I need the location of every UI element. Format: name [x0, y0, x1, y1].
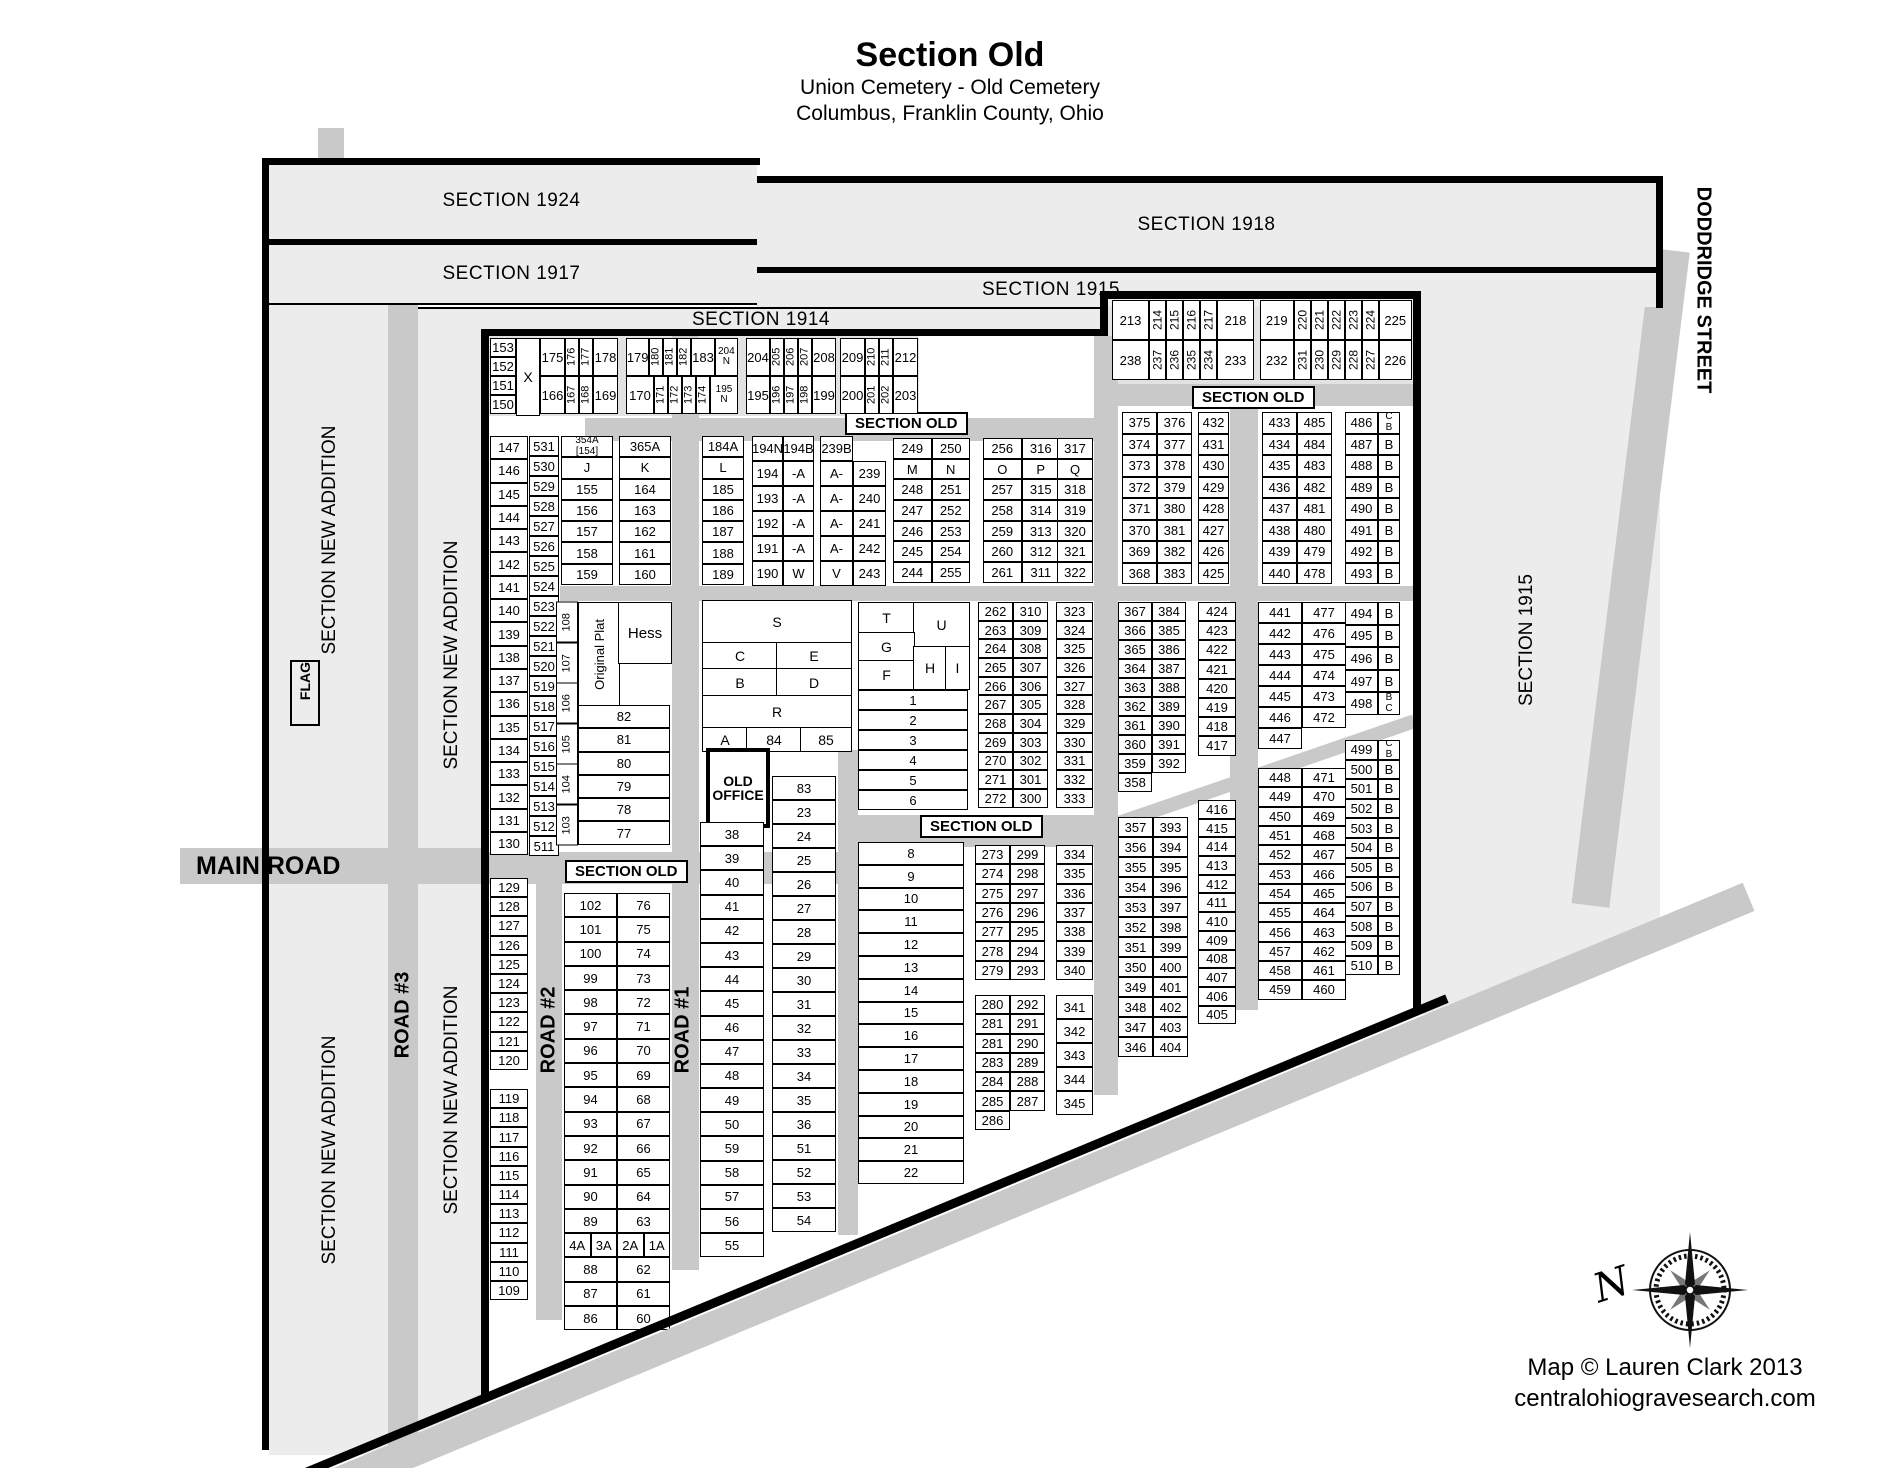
section-1917-label: SECTION 1917: [443, 263, 581, 285]
plot-grid-38-59: 383940414243444546474849505958575655: [700, 822, 764, 1257]
plot-cell-164: 164: [619, 479, 671, 500]
plot-cell-420: 420: [1198, 679, 1236, 698]
plot-cell-296: 296: [1010, 903, 1045, 922]
plot-cell-525: 525: [529, 556, 559, 576]
plot-cell-395: 395: [1153, 857, 1188, 877]
plot-cell-478: 478: [1297, 563, 1332, 585]
plot-cell-330: 330: [1056, 733, 1093, 752]
plot-cell-207: 207: [798, 338, 812, 376]
plot-grid-184-189: 184AL185186187188189: [702, 436, 744, 585]
plot-cell-460: 460: [1302, 980, 1346, 999]
plot-cell-325: 325: [1056, 639, 1093, 658]
plot-cell-219: 219: [1260, 300, 1294, 340]
plot-cell-158: 158: [561, 542, 613, 563]
plot-cell-59: 59: [700, 1136, 764, 1160]
plot-cell-270: 270: [978, 752, 1013, 771]
plot-grid-150-153: 153152151150: [490, 338, 516, 414]
plot-cell-h: H: [913, 646, 947, 690]
plot-cell-387: 387: [1152, 659, 1186, 678]
plot-cell-132: 132: [490, 785, 528, 808]
plot-cell-184a: 184A: [702, 436, 744, 457]
plot-cell-134: 134: [490, 739, 528, 762]
plot-cell-88: 88: [564, 1257, 617, 1281]
plot-cell-c-b: CB: [1378, 412, 1400, 434]
plot-cell-58: 58: [700, 1161, 764, 1185]
plot-cell-509: 509: [1345, 936, 1378, 956]
plot-cell-123: 123: [490, 993, 528, 1012]
plot-cell-385: 385: [1152, 621, 1186, 640]
plot-cell-231: 231: [1294, 340, 1311, 380]
plot-cell-162: 162: [619, 521, 671, 542]
plot-cell-308: 308: [1013, 639, 1048, 658]
plot-cell-12: 12: [858, 933, 964, 956]
plot-cell-514: 514: [529, 776, 559, 796]
plot-cell-367: 367: [1118, 602, 1152, 621]
plot-cell-512: 512: [529, 816, 559, 836]
plot-cell-275: 275: [975, 884, 1010, 903]
section-1918-right-border: [1656, 176, 1663, 308]
plot-cell-j: J: [561, 457, 613, 478]
plot-cell-376: 376: [1157, 412, 1192, 434]
plot-cell-167: 167: [565, 376, 579, 414]
plot-cell-471: 471: [1302, 768, 1346, 787]
plot-cell-13: 13: [858, 956, 964, 979]
section-old-label-upper: SECTION OLD: [845, 412, 968, 435]
dodridge-street-label: DODDRIDGE STREET: [1692, 187, 1715, 394]
plot-cell-b: B: [1378, 520, 1400, 542]
plot-cell-213: 213: [1112, 300, 1149, 340]
plot-cell-426: 426: [1198, 541, 1229, 563]
plot-cell-20: 20: [858, 1116, 964, 1139]
plot-cell-100: 100: [564, 942, 617, 966]
plot-cell-493: 493: [1345, 563, 1378, 585]
plot-cell-311: 311: [1022, 562, 1061, 583]
plot-cell-526: 526: [529, 536, 559, 556]
road1-label: ROAD #1: [672, 987, 695, 1074]
plot-cell-407: 407: [1198, 968, 1236, 987]
plot-cell-64: 64: [617, 1185, 670, 1209]
plot-cell-239b: 239B: [820, 436, 853, 461]
plot-cell-137: 137: [490, 669, 528, 692]
plot-cell-315: 315: [1022, 479, 1061, 500]
plot-cell-193: 193: [752, 486, 783, 511]
plot-cell-306: 306: [1013, 677, 1048, 696]
plot-cell-w: W: [783, 561, 814, 586]
plot-grid-405-416: 416415414413412411410409408407406405: [1198, 800, 1236, 1024]
plot-cell-t: T: [858, 602, 915, 634]
plot-cell-302: 302: [1013, 752, 1048, 771]
plot-grid-60-102: 1027610175100749973987297719670956994689…: [564, 893, 670, 1330]
plot-cell-3: 3: [858, 730, 968, 750]
plot-grid-368-383: 3753763743773733783723793713803703813693…: [1122, 412, 1192, 584]
plot-cell-113: 113: [490, 1204, 528, 1223]
plot-cell-91: 91: [564, 1160, 617, 1184]
plot-grid-448-471: 4484714494704504694514684524674534664544…: [1258, 768, 1346, 1000]
plot-cell-9: 9: [858, 865, 964, 888]
plot-cell-319: 319: [1057, 500, 1093, 521]
plot-cell-396: 396: [1153, 877, 1188, 897]
plot-cell-428: 428: [1198, 498, 1229, 520]
plot-cell-199: 199: [812, 376, 836, 414]
plot-cell-15: 15: [858, 1002, 964, 1025]
plot-cell-235: 235: [1183, 340, 1200, 380]
plot-cell-18: 18: [858, 1070, 964, 1093]
plot-cell-494: 494: [1345, 602, 1378, 625]
plot-cell--a: -A: [783, 486, 814, 511]
plot-cell-503: 503: [1345, 818, 1378, 838]
plot-cell-141: 141: [490, 576, 528, 599]
plot-cell-19: 19: [858, 1093, 964, 1116]
plot-cell-284: 284: [975, 1072, 1010, 1091]
plot-cell-268: 268: [978, 714, 1013, 733]
plot-cell-a-: A-: [820, 486, 853, 511]
plot-grid-170-204N: 179180181182183204N170171172173174195N: [626, 338, 738, 414]
plot-cell-122: 122: [490, 1012, 528, 1031]
plot-grid-262-310: 2623102633092643082653072663062673052683…: [978, 602, 1048, 808]
plot-cell-179: 179: [626, 338, 649, 376]
plot-cell-475: 475: [1302, 644, 1346, 665]
plot-cell-b: B: [1378, 434, 1400, 456]
plot-cell-139: 139: [490, 622, 528, 645]
compass-rose-icon: [1632, 1232, 1748, 1348]
plot-cell-259: 259: [983, 521, 1022, 542]
page-title: Section Old: [560, 36, 1340, 75]
plot-cell-224: 224: [1362, 300, 1379, 340]
plot-cell-266: 266: [978, 677, 1013, 696]
plot-grid-109-129: 1291281271261251241231221211201191181171…: [490, 878, 528, 1300]
plot-grid-200-212: 209210211212200201202203: [840, 338, 918, 414]
plot-cell-82: 82: [578, 705, 670, 728]
plot-cell-443: 443: [1258, 644, 1302, 665]
plot-cell-175: 175: [540, 338, 565, 376]
plot-cell--a: -A: [783, 536, 814, 561]
plot-cell-411: 411: [1198, 893, 1236, 912]
plot-cell-8: 8: [858, 842, 964, 865]
plot-cell-418: 418: [1198, 717, 1236, 736]
plot-cell-4a: 4A: [564, 1233, 591, 1257]
plot-cell-160: 160: [619, 564, 671, 585]
plot-cell-72: 72: [617, 990, 670, 1014]
plot-cell-166: 166: [540, 376, 565, 414]
plot-grid-425-432: 432431430429428427426425: [1198, 412, 1229, 584]
plot-cell-314: 314: [1022, 500, 1061, 521]
plot-cell-322: 322: [1057, 562, 1093, 583]
plot-cell-v: V: [820, 561, 853, 586]
plot-cell-221: 221: [1311, 300, 1328, 340]
plot-cell-427: 427: [1198, 520, 1229, 542]
plot-cell-55: 55: [700, 1233, 764, 1257]
plot-cell-338: 338: [1056, 922, 1093, 941]
plot-cell-112: 112: [490, 1223, 528, 1242]
plot-cell-365: 365: [1118, 640, 1152, 659]
plot-cell-b: B: [702, 668, 778, 697]
plot-cell-115: 115: [490, 1166, 528, 1185]
plot-cell-201: 201: [865, 376, 879, 414]
plot-cell-461: 461: [1302, 961, 1346, 980]
plot-cell-434: 434: [1262, 434, 1297, 456]
plot-cell-109: 109: [490, 1281, 528, 1300]
plot-cell-4: 4: [858, 750, 968, 770]
plot-cell-220: 220: [1294, 300, 1311, 340]
plot-cell-464: 464: [1302, 903, 1346, 922]
plot-cell-85: 85: [800, 727, 852, 752]
plot-grid-103-108: 108107106105104103: [556, 602, 578, 845]
plot-cell-484: 484: [1297, 434, 1332, 456]
plot-grid-280-292: 280292281291281290283289284288285287286: [975, 995, 1045, 1130]
section-new-addition-label-4: SECTION NEW ADDITION: [441, 985, 463, 1214]
plot-cell-288: 288: [1010, 1072, 1045, 1091]
plot-cell-68: 68: [617, 1087, 670, 1111]
plot-cell-50: 50: [700, 1112, 764, 1136]
plot-cell-362: 362: [1118, 697, 1152, 716]
plot-cell-233: 233: [1217, 340, 1254, 380]
plot-cell-327: 327: [1056, 677, 1093, 696]
plot-cell-489: 489: [1345, 477, 1378, 499]
plot-cell-21: 21: [858, 1138, 964, 1161]
plot-cell-300: 300: [1013, 789, 1048, 808]
plot-cell-369: 369: [1122, 541, 1157, 563]
plot-cell-67: 67: [617, 1112, 670, 1136]
plot-cell-144: 144: [490, 506, 528, 529]
plot-cell-472: 472: [1302, 707, 1346, 728]
plot-cell-46: 46: [700, 1016, 764, 1040]
plot-cell-110: 110: [490, 1262, 528, 1281]
plot-cell-307: 307: [1013, 658, 1048, 677]
plot-cell-63: 63: [617, 1209, 670, 1233]
plot-grid-239-243: 239BA-239A-240A-241A-242V243: [820, 436, 886, 586]
plot-cell-6: 6: [858, 790, 968, 810]
plot-cell-130: 130: [490, 832, 528, 855]
plot-cell-194: 194: [752, 461, 783, 486]
plot-cell-370: 370: [1122, 520, 1157, 542]
plot-cell-b: B: [1378, 936, 1400, 956]
plot-cell-120: 120: [490, 1051, 528, 1070]
plot-cell-10: 10: [858, 888, 964, 911]
plot-cell-283: 283: [975, 1053, 1010, 1072]
plot-cell-474: 474: [1302, 665, 1346, 686]
plot-cell-38: 38: [700, 822, 764, 846]
plot-cell-415: 415: [1198, 819, 1236, 838]
plot-cell-99: 99: [564, 966, 617, 990]
plot-cell-25: 25: [772, 848, 836, 872]
plot-cell-485: 485: [1297, 412, 1332, 434]
plot-cell-180: 180: [649, 338, 663, 376]
plot-cell-400: 400: [1153, 957, 1188, 977]
plot-cell-328: 328: [1056, 695, 1093, 714]
plot-cell-95: 95: [564, 1063, 617, 1087]
original-plat-cell: Original Plat: [578, 602, 620, 707]
plot-cell-36: 36: [772, 1112, 836, 1136]
plot-cell-117: 117: [490, 1127, 528, 1146]
plot-cell-524: 524: [529, 576, 559, 596]
plot-cell-245: 245: [893, 541, 932, 562]
plot-grid-441-477: 441477442476443475444474445473446472447: [1258, 602, 1346, 749]
road3-strip: [388, 160, 418, 1455]
section-1914-box: SECTION 1914: [418, 307, 1104, 331]
plot-cell-423: 423: [1198, 621, 1236, 640]
plot-cell-393: 393: [1153, 817, 1188, 837]
plot-cell-354a-154-: 354A[154]: [561, 436, 613, 457]
plot-cell-3a: 3A: [591, 1233, 618, 1257]
plot-cell-236: 236: [1166, 340, 1183, 380]
plot-cell-483: 483: [1297, 455, 1332, 477]
plot-cell-455: 455: [1258, 903, 1302, 922]
plot-cell-329: 329: [1056, 714, 1093, 733]
plot-cell-260: 260: [983, 541, 1022, 562]
road-horizontal-mid: [560, 586, 1413, 601]
plot-cell-507: 507: [1345, 897, 1378, 917]
plot-cell-445: 445: [1258, 686, 1302, 707]
plot-cell-239: 239: [853, 461, 886, 486]
plot-cell-26: 26: [772, 872, 836, 896]
plot-cell-45: 45: [700, 991, 764, 1015]
plot-cell-373: 373: [1122, 455, 1157, 477]
plot-cell-152: 152: [490, 357, 516, 376]
plot-cell-249: 249: [893, 438, 932, 459]
plot-cell-492: 492: [1345, 541, 1378, 563]
plot-cell-216: 216: [1183, 300, 1200, 340]
plot-cell-361: 361: [1118, 716, 1152, 735]
plot-cell-530: 530: [529, 456, 559, 476]
plot-cell-230: 230: [1311, 340, 1328, 380]
plot-cell-248: 248: [893, 479, 932, 500]
section-new-addition-label-3: SECTION NEW ADDITION: [319, 1035, 341, 1264]
plot-cell-204-n: 204N: [715, 338, 738, 376]
plot-cell-290: 290: [1010, 1034, 1045, 1053]
plot-cell-73: 73: [617, 966, 670, 990]
plot-cell-431: 431: [1198, 434, 1229, 456]
section-new-addition-label-1: SECTION NEW ADDITION: [319, 425, 341, 654]
plot-cell-318: 318: [1057, 479, 1093, 500]
plot-cell-194n: 194N: [752, 436, 783, 461]
plot-cell-347: 347: [1118, 1017, 1153, 1037]
plot-cell-181: 181: [663, 338, 677, 376]
plot-cell-b-c: BC: [1378, 692, 1400, 715]
page-subtitle-2: Columbus, Franklin County, Ohio: [560, 101, 1340, 127]
plot-cell-386: 386: [1152, 640, 1186, 659]
plot-cell-28: 28: [772, 920, 836, 944]
plot-cell-r: R: [702, 695, 852, 729]
plot-cell-424: 424: [1198, 602, 1236, 621]
plot-cell-102: 102: [564, 893, 617, 917]
plot-cell-353: 353: [1118, 897, 1153, 917]
plot-cell-81: 81: [578, 728, 670, 751]
plot-cell-417: 417: [1198, 736, 1236, 755]
plot-cell-293: 293: [1010, 961, 1045, 980]
plot-cell-326: 326: [1056, 658, 1093, 677]
road1-strip: [672, 336, 699, 1270]
plot-cell-86: 86: [564, 1306, 617, 1330]
plot-grid-346-404: 3573933563943553953543963533973523983513…: [1118, 817, 1188, 1057]
plot-cell-508: 508: [1345, 916, 1378, 936]
plot-cell-298: 298: [1010, 864, 1045, 883]
plot-cell-228: 228: [1345, 340, 1362, 380]
plot-cell-256: 256: [983, 438, 1022, 459]
plot-cell-u: U: [913, 602, 970, 648]
plot-cell-108: 108: [556, 602, 578, 643]
plot-cell-454: 454: [1258, 884, 1302, 903]
plot-cell-124: 124: [490, 974, 528, 993]
plot-cell-105: 105: [556, 724, 578, 765]
plot-cell-11: 11: [858, 910, 964, 933]
plot-cell-217: 217: [1200, 300, 1217, 340]
plot-cell-240: 240: [853, 486, 886, 511]
plot-cell-421: 421: [1198, 660, 1236, 679]
plot-cell-161: 161: [619, 542, 671, 563]
plot-cell-351: 351: [1118, 937, 1153, 957]
plot-cell-i: I: [945, 646, 970, 690]
plot-cell-209: 209: [840, 338, 865, 376]
plot-cell-261: 261: [983, 562, 1022, 583]
plot-cell-b: B: [1378, 602, 1400, 625]
plot-cell-22: 22: [858, 1161, 964, 1184]
section-old-label-lower-left: SECTION OLD: [565, 860, 688, 883]
plot-cell-273: 273: [975, 845, 1010, 864]
plot-cell-69: 69: [617, 1063, 670, 1087]
plot-cell-505: 505: [1345, 858, 1378, 878]
plot-cell-518: 518: [529, 696, 559, 716]
main-box-top-border-left: [481, 329, 1108, 336]
plot-cell-182: 182: [677, 338, 691, 376]
plot-cell-77: 77: [578, 821, 670, 844]
plot-cell-286: 286: [975, 1111, 1010, 1130]
plot-cell-403: 403: [1153, 1017, 1188, 1037]
plot-grid-77-82: 828180797877: [578, 705, 670, 845]
plot-cell-265: 265: [978, 658, 1013, 677]
plot-grid-494-498: 494B495B496B497B498BC: [1345, 602, 1400, 715]
plot-cell-354: 354: [1118, 877, 1153, 897]
plot-cell-156: 156: [561, 500, 613, 521]
plot-cell-280: 280: [975, 995, 1010, 1014]
plot-cell-323: 323: [1056, 602, 1093, 621]
road-vertical-4: [1094, 336, 1118, 1095]
plot-cell-332: 332: [1056, 770, 1093, 789]
plot-cell-510: 510: [1345, 956, 1378, 976]
plot-cell-301: 301: [1013, 770, 1048, 789]
plot-cell-94: 94: [564, 1087, 617, 1111]
plot-cell-444: 444: [1258, 665, 1302, 686]
plot-cell-482: 482: [1297, 477, 1332, 499]
plot-cell-234: 234: [1200, 340, 1217, 380]
section-1915-right-label: SECTION 1915: [1516, 574, 1538, 706]
plot-cell-247: 247: [893, 500, 932, 521]
plot-cell-51: 51: [772, 1136, 836, 1160]
plot-cell-159: 159: [561, 564, 613, 585]
plot-cell-131: 131: [490, 809, 528, 832]
plot-cell-47: 47: [700, 1040, 764, 1064]
plot-cell-255: 255: [932, 562, 971, 583]
plot-cell-174: 174: [696, 376, 710, 414]
plot-cell-448: 448: [1258, 768, 1302, 787]
main-box-left-border: [481, 329, 489, 1397]
plot-cell-111: 111: [490, 1243, 528, 1262]
section-1924-box: SECTION 1924: [266, 163, 757, 239]
plot-cell-a-: A-: [820, 511, 853, 536]
page-subtitle-1: Union Cemetery - Old Cemetery: [560, 75, 1340, 101]
plot-cell-279: 279: [975, 961, 1010, 980]
plot-cell-486: 486: [1345, 412, 1378, 434]
plot-cell-136: 136: [490, 692, 528, 715]
plot-cell-467: 467: [1302, 845, 1346, 864]
section-1918-label: SECTION 1918: [1138, 214, 1276, 236]
plot-cell-223: 223: [1345, 300, 1362, 340]
plot-cell-342: 342: [1056, 1019, 1093, 1043]
plot-cell-143: 143: [490, 529, 528, 552]
plot-grid-323-333: 323324325326327328329330331332333: [1056, 602, 1093, 808]
plot-cell-414: 414: [1198, 837, 1236, 856]
plot-cell-116: 116: [490, 1147, 528, 1166]
plot-cell-k: K: [619, 457, 671, 478]
